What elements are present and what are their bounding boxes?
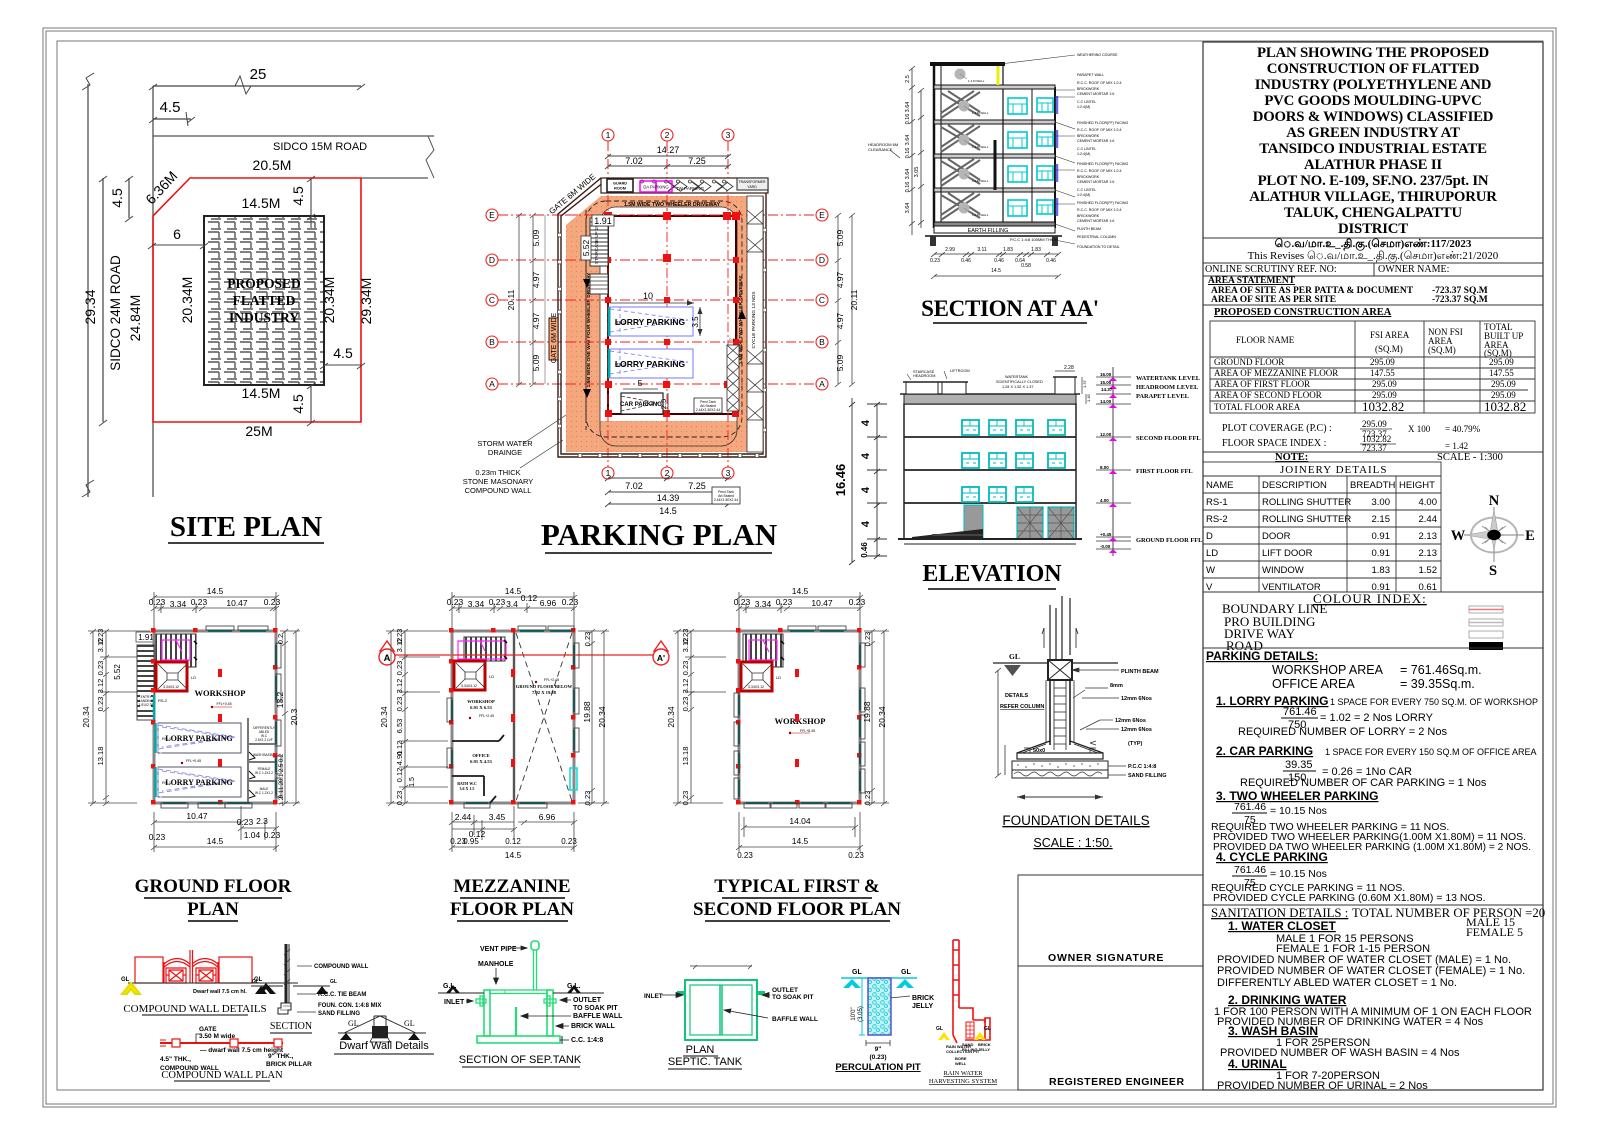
svg-text:0.23: 0.23 bbox=[681, 697, 690, 712]
svg-text:0.23: 0.23 bbox=[583, 632, 592, 647]
svg-text:D: D bbox=[489, 255, 495, 265]
svg-text:0.58: 0.58 bbox=[1021, 263, 1031, 269]
svg-text:5.52: 5.52 bbox=[113, 664, 122, 680]
svg-text:COLOUR INDEX:: COLOUR INDEX: bbox=[1313, 591, 1427, 606]
svg-text:GROUND FLOOR FFL: GROUND FLOOR FFL bbox=[1136, 537, 1202, 544]
svg-text:8mm: 8mm bbox=[1110, 683, 1123, 689]
svg-text:FINISHED FLOOR(FF) FACING: FINISHED FLOOR(FF) FACING bbox=[1077, 162, 1129, 166]
svg-text:TOTAL NUMBER OF PERSON =20: TOTAL NUMBER OF PERSON =20 bbox=[1352, 906, 1545, 920]
svg-text:PARAPET WALL: PARAPET WALL bbox=[1077, 73, 1104, 77]
svg-text:LORRY PARKING: LORRY PARKING bbox=[165, 778, 233, 787]
svg-text:1.91X2.38: 1.91X2.38 bbox=[139, 703, 154, 707]
svg-text:FILLING: FILLING bbox=[962, 1047, 978, 1052]
svg-text:14.5: 14.5 bbox=[207, 586, 224, 596]
svg-text:REGISTERED ENGINEER: REGISTERED ENGINEER bbox=[1049, 1076, 1185, 1088]
svg-text:ROOM: ROOM bbox=[614, 187, 626, 191]
svg-text:GL: GL bbox=[348, 1019, 359, 1028]
svg-text:0.16: 0.16 bbox=[905, 114, 911, 125]
svg-text:B: B bbox=[489, 337, 495, 347]
svg-text:STONE MASONARY: STONE MASONARY bbox=[463, 477, 534, 486]
svg-text:C.C LINTEL: C.C LINTEL bbox=[1077, 147, 1096, 151]
svg-text:PARKING DETAILS:: PARKING DETAILS: bbox=[1206, 649, 1318, 663]
svg-text:2.99: 2.99 bbox=[945, 247, 955, 253]
svg-text:V: V bbox=[1206, 582, 1213, 593]
svg-text:= 761.46Sq.m.: = 761.46Sq.m. bbox=[1400, 663, 1482, 677]
svg-text:YARD: YARD bbox=[747, 185, 757, 189]
svg-text:14.27: 14.27 bbox=[657, 145, 680, 155]
svg-text:WEATHERING COURSE: WEATHERING COURSE bbox=[1077, 53, 1118, 57]
svg-text:PLINTH BEAM: PLINTH BEAM bbox=[1121, 669, 1159, 675]
svg-text:PLOT NO. E-109, SF.NO. 237/5pt: PLOT NO. E-109, SF.NO. 237/5pt. IN bbox=[1258, 173, 1489, 189]
svg-text:9" THK.,: 9" THK., bbox=[268, 1053, 294, 1060]
svg-text:PROVIDED CYCLE PARKING (0.60M: PROVIDED CYCLE PARKING (0.60M X1.80M) = … bbox=[1213, 892, 1486, 904]
svg-text:+0.45: +0.45 bbox=[1100, 532, 1112, 537]
svg-text:1.2: 1.2 bbox=[279, 796, 285, 805]
svg-text:ROLLING SHUTTER: ROLLING SHUTTER bbox=[1262, 497, 1351, 508]
svg-text:0.1: 0.1 bbox=[279, 773, 285, 782]
svg-text:FLOOR SPACE INDEX :: FLOOR SPACE INDEX : bbox=[1222, 438, 1326, 449]
svg-text:0.23m THICK: 0.23m THICK bbox=[475, 468, 520, 477]
svg-text:BRICK WALL: BRICK WALL bbox=[571, 1023, 616, 1030]
svg-text:COMPOUND WALL: COMPOUND WALL bbox=[314, 964, 369, 970]
svg-text:(0.23): (0.23) bbox=[870, 1054, 887, 1061]
svg-text:29.34: 29.34 bbox=[82, 289, 98, 324]
svg-text:= 10.15 Nos: = 10.15 Nos bbox=[1270, 805, 1327, 817]
svg-text:295.09: 295.09 bbox=[1370, 357, 1395, 367]
svg-text:6: 6 bbox=[173, 226, 181, 242]
svg-text:13.18: 13.18 bbox=[681, 747, 690, 766]
svg-text:25: 25 bbox=[250, 66, 267, 83]
svg-text:0.23: 0.23 bbox=[191, 597, 208, 607]
svg-text:VENT PIPE: VENT PIPE bbox=[480, 946, 517, 953]
svg-text:ELEVATION: ELEVATION bbox=[922, 561, 1062, 587]
svg-text:BRICKWORK: BRICKWORK bbox=[1077, 87, 1100, 91]
svg-text:JELLY: JELLY bbox=[912, 1003, 933, 1010]
svg-text:WORKSHOP AREA: WORKSHOP AREA bbox=[1272, 663, 1384, 677]
svg-text:5.09: 5.09 bbox=[835, 229, 845, 246]
svg-text:4.5: 4.5 bbox=[160, 99, 181, 116]
svg-text:CEMENT MORTAR 1:6: CEMENT MORTAR 1:6 bbox=[1077, 219, 1114, 223]
svg-text:BRICKWORK: BRICKWORK bbox=[1077, 175, 1100, 179]
svg-text:SECTION AT AA': SECTION AT AA' bbox=[921, 296, 1099, 321]
svg-text:1.45: 1.45 bbox=[1086, 393, 1091, 402]
svg-text:2: 2 bbox=[665, 130, 670, 140]
svg-text:B: B bbox=[819, 337, 825, 347]
svg-text:PLAN: PLAN bbox=[686, 1044, 715, 1056]
svg-text:3.45: 3.45 bbox=[489, 812, 506, 822]
svg-text:6.91 X 6.53: 6.91 X 6.53 bbox=[470, 705, 492, 710]
svg-text:0.23: 0.23 bbox=[96, 629, 105, 644]
svg-text:1.37: 1.37 bbox=[1082, 379, 1087, 388]
svg-text:X 100: X 100 bbox=[1408, 424, 1431, 434]
svg-text:0.23: 0.23 bbox=[149, 832, 166, 842]
svg-text:0.23: 0.23 bbox=[930, 258, 940, 264]
svg-text:Dwarf Wall Details: Dwarf Wall Details bbox=[339, 1040, 429, 1052]
svg-text:0.12: 0.12 bbox=[521, 593, 538, 603]
svg-text:GROUND FLOOR: GROUND FLOOR bbox=[135, 876, 292, 897]
svg-text:HEADROOM LEVEL: HEADROOM LEVEL bbox=[1136, 384, 1198, 391]
svg-text:14.5M: 14.5M bbox=[242, 195, 281, 211]
svg-text:4: 4 bbox=[860, 520, 872, 527]
svg-text:GATE 6M WIDE: GATE 6M WIDE bbox=[551, 312, 558, 363]
svg-text:4.91: 4.91 bbox=[395, 751, 404, 766]
svg-text:20.34: 20.34 bbox=[379, 706, 389, 728]
svg-text:0.2: 0.2 bbox=[279, 753, 285, 762]
svg-text:DISTRICT: DISTRICT bbox=[1338, 221, 1408, 237]
svg-text:5.09: 5.09 bbox=[531, 229, 541, 246]
svg-text:TRANSFORMER: TRANSFORMER bbox=[738, 180, 766, 184]
svg-text:GL: GL bbox=[852, 969, 862, 976]
svg-text:10.47: 10.47 bbox=[186, 811, 208, 821]
svg-text:= 10.15 Nos: = 10.15 Nos bbox=[1270, 868, 1327, 880]
svg-text:12mm 6Nos: 12mm 6Nos bbox=[1121, 696, 1152, 702]
svg-text:PLAN: PLAN bbox=[187, 899, 239, 920]
svg-text:147.55: 147.55 bbox=[1489, 368, 1514, 378]
svg-text:G.L.: G.L. bbox=[567, 983, 581, 990]
svg-text:DOORS & WINDOWS) CLASSIFIED: DOORS & WINDOWS) CLASSIFIED bbox=[1253, 109, 1494, 125]
svg-text:INDUSTRY (POLYETHYLENE AND: INDUSTRY (POLYETHYLENE AND bbox=[1255, 77, 1492, 93]
svg-text:0.23: 0.23 bbox=[264, 597, 281, 607]
svg-text:PLOT COVERAGE (P.C) :: PLOT COVERAGE (P.C) : bbox=[1222, 423, 1332, 434]
svg-text:GL: GL bbox=[1009, 652, 1020, 661]
svg-text:3.12: 3.12 bbox=[96, 679, 105, 694]
svg-text:DESCRIPTION: DESCRIPTION bbox=[1262, 480, 1327, 491]
svg-text:BAFFLE WALL: BAFFLE WALL bbox=[573, 1013, 623, 1020]
svg-text:20.3: 20.3 bbox=[289, 708, 299, 725]
svg-text:ALATHUR PHASE II: ALATHUR PHASE II bbox=[1304, 157, 1442, 173]
svg-text:CONSTRUCTION OF FLATTED: CONSTRUCTION OF FLATTED bbox=[1267, 61, 1479, 77]
svg-text:1032.82: 1032.82 bbox=[1362, 399, 1404, 414]
svg-text:CEMENT MORTAR 1:6: CEMENT MORTAR 1:6 bbox=[1077, 92, 1114, 96]
svg-text:19.88: 19.88 bbox=[862, 701, 872, 723]
svg-text:0.46: 0.46 bbox=[994, 258, 1004, 264]
svg-text:BAFFLE WALL: BAFFLE WALL bbox=[772, 1016, 818, 1023]
svg-text:DOOR: DOOR bbox=[1262, 531, 1291, 542]
svg-text:CYCLE PARKING 13 NOS: CYCLE PARKING 13 NOS bbox=[751, 292, 757, 349]
svg-text:4.5: 4.5 bbox=[109, 188, 125, 208]
svg-text:5.09: 5.09 bbox=[835, 354, 845, 371]
svg-text:PROPOSED CONSTRUCTION AREA: PROPOSED CONSTRUCTION AREA bbox=[1214, 307, 1392, 318]
svg-text:25M: 25M bbox=[245, 423, 272, 439]
svg-text:0.23: 0.23 bbox=[737, 851, 753, 860]
svg-text:0.95: 0.95 bbox=[463, 837, 479, 846]
svg-text:FFL+2.45: FFL+2.45 bbox=[479, 714, 494, 718]
svg-text:14.5: 14.5 bbox=[792, 586, 809, 596]
svg-text:COMPOUND WALL PLAN: COMPOUND WALL PLAN bbox=[161, 1070, 283, 1081]
svg-text:1.4 M WALL: 1.4 M WALL bbox=[972, 111, 989, 115]
svg-text:DRAINGE: DRAINGE bbox=[488, 448, 522, 457]
svg-text:6.91 X 4.53: 6.91 X 4.53 bbox=[470, 759, 492, 764]
svg-text:PEDESTRIAL COLUMN: PEDESTRIAL COLUMN bbox=[1077, 235, 1116, 239]
svg-text:PARKING PLAN: PARKING PLAN bbox=[541, 517, 777, 552]
svg-text:FOUNDATION DETAILS: FOUNDATION DETAILS bbox=[1002, 813, 1149, 828]
svg-text:3.64: 3.64 bbox=[905, 135, 911, 146]
svg-text:3.34: 3.34 bbox=[468, 599, 485, 609]
svg-text:0.23: 0.23 bbox=[681, 791, 690, 806]
svg-text:19.88: 19.88 bbox=[582, 701, 592, 723]
svg-text:STORM WATER: STORM WATER bbox=[477, 439, 533, 448]
svg-text:LORRY PARKING: LORRY PARKING bbox=[165, 734, 233, 743]
svg-text:CAR PARKING: CAR PARKING bbox=[620, 402, 662, 408]
svg-text:6.96: 6.96 bbox=[539, 812, 556, 822]
svg-text:ALATHUR VILLAGE, THIRUPORUR: ALATHUR VILLAGE, THIRUPORUR bbox=[1249, 189, 1497, 205]
svg-text:LD: LD bbox=[191, 675, 196, 680]
svg-text:3.34X3.12: 3.34X3.12 bbox=[748, 685, 764, 689]
svg-text:14.00: 14.00 bbox=[1100, 399, 1112, 404]
svg-text:7.02 X 19.88: 7.02 X 19.88 bbox=[532, 690, 557, 695]
svg-text:(3.05): (3.05) bbox=[858, 1006, 864, 1022]
svg-text:-723.37 SQ.M: -723.37 SQ.M bbox=[1432, 295, 1488, 305]
svg-text:3.34: 3.34 bbox=[755, 599, 772, 609]
svg-text:A': A' bbox=[657, 653, 665, 663]
svg-text:GL: GL bbox=[901, 969, 911, 976]
svg-text:10.47: 10.47 bbox=[811, 598, 833, 608]
svg-text:BRICKWORK: BRICKWORK bbox=[1077, 134, 1100, 138]
svg-text:1.4 M WALL: 1.4 M WALL bbox=[968, 79, 985, 83]
svg-text:R.C.C. TIE BEAM: R.C.C. TIE BEAM bbox=[318, 992, 366, 998]
svg-text:DA PARKING: DA PARKING bbox=[643, 185, 668, 190]
svg-text:0.23: 0.23 bbox=[489, 597, 506, 607]
svg-text:0.23: 0.23 bbox=[395, 791, 404, 806]
svg-text:14.39: 14.39 bbox=[657, 493, 680, 503]
svg-text:HEADROOM: HEADROOM bbox=[913, 374, 935, 378]
svg-text:SEPTIC. TANK: SEPTIC. TANK bbox=[668, 1056, 743, 1068]
svg-text:20.34: 20.34 bbox=[666, 706, 676, 728]
svg-text:RS-2: RS-2 bbox=[158, 698, 168, 703]
svg-text:STAIRCASE UP 19R: STAIRCASE UP 19R bbox=[594, 221, 599, 264]
svg-text:PLAN SHOWING THE PROPOSED: PLAN SHOWING THE PROPOSED bbox=[1257, 45, 1489, 61]
svg-text:2.44X1.50X2.44: 2.44X1.50X2.44 bbox=[714, 498, 738, 502]
svg-text:20.34M: 20.34M bbox=[179, 277, 195, 324]
svg-text:A: A bbox=[489, 379, 495, 389]
svg-text:295.09: 295.09 bbox=[1489, 357, 1514, 367]
svg-text:GROUND FLOOR BELOW: GROUND FLOOR BELOW bbox=[516, 684, 573, 689]
svg-text:6.96: 6.96 bbox=[540, 598, 557, 608]
svg-text:1 SPACE FOR EVERY 150 SQ.M OF: 1 SPACE FOR EVERY 150 SQ.M OF OFFICE ARE… bbox=[1325, 747, 1537, 757]
svg-text:CLEARANCE: CLEARANCE bbox=[868, 147, 893, 152]
svg-text:2.13: 2.13 bbox=[1419, 548, 1438, 559]
svg-text:1.04: 1.04 bbox=[244, 830, 261, 840]
svg-text:4.5: 4.5 bbox=[290, 394, 306, 414]
svg-text:BRICKWORK: BRICKWORK bbox=[1077, 214, 1100, 218]
svg-text:295.09: 295.09 bbox=[1372, 379, 1397, 389]
svg-text:4: 4 bbox=[860, 419, 872, 426]
svg-text:PERCULATION PIT: PERCULATION PIT bbox=[835, 1062, 921, 1073]
svg-text:CEMENT MORTAR 1:6: CEMENT MORTAR 1:6 bbox=[1077, 180, 1114, 184]
svg-text:3.12: 3.12 bbox=[395, 679, 404, 694]
svg-text:14.5: 14.5 bbox=[505, 850, 522, 860]
svg-text:0.23: 0.23 bbox=[264, 830, 281, 840]
svg-text:3.11: 3.11 bbox=[977, 247, 987, 253]
svg-text:4.97: 4.97 bbox=[835, 271, 845, 288]
svg-text:12.00: 12.00 bbox=[1100, 432, 1112, 437]
svg-text:AREA OF FIRST FLOOR: AREA OF FIRST FLOOR bbox=[1214, 379, 1310, 389]
svg-text:AREA OF SITE AS PER SITE: AREA OF SITE AS PER SITE bbox=[1211, 295, 1336, 305]
svg-text:0.23: 0.23 bbox=[681, 661, 690, 676]
svg-text:INDUSTRY: INDUSTRY bbox=[229, 310, 299, 325]
svg-text:Dwarf wall 7.5 cm hl.: Dwarf wall 7.5 cm hl. bbox=[193, 989, 247, 995]
svg-text:GL: GL bbox=[252, 979, 259, 985]
svg-text:SAND FILLING: SAND FILLING bbox=[318, 1011, 360, 1017]
svg-text:TW PARKING: TW PARKING bbox=[676, 186, 705, 191]
svg-text:15.00: 15.00 bbox=[1100, 380, 1112, 385]
svg-text:FFL+2.45: FFL+2.45 bbox=[544, 678, 559, 682]
svg-text:GL: GL bbox=[121, 977, 130, 983]
svg-text:0.23: 0.23 bbox=[562, 597, 579, 607]
svg-text:0.1: 0.1 bbox=[279, 789, 285, 798]
svg-text:1.5M WIDE TWO WHEELER DRIVEWA: 1.5M WIDE TWO WHEELER DRIVEWAY bbox=[624, 202, 721, 208]
svg-text:0.16: 0.16 bbox=[905, 148, 911, 159]
svg-text:0.12: 0.12 bbox=[395, 768, 404, 783]
svg-text:GL: GL bbox=[330, 979, 337, 985]
svg-text:BRICK: BRICK bbox=[912, 995, 934, 1002]
svg-text:CEMENT MORTAR 1:6: CEMENT MORTAR 1:6 bbox=[1077, 139, 1114, 143]
svg-text:20.34: 20.34 bbox=[877, 706, 887, 728]
svg-text:FSI AREA: FSI AREA bbox=[1370, 330, 1410, 340]
svg-text:4.00: 4.00 bbox=[1100, 498, 1109, 503]
svg-text:WINDOW: WINDOW bbox=[1262, 565, 1304, 576]
svg-text:N: N bbox=[1489, 493, 1500, 509]
svg-text:OFFICE: OFFICE bbox=[472, 753, 489, 758]
svg-text:ONLINE SCRUTINY REF. NO:: ONLINE SCRUTINY REF. NO: bbox=[1205, 264, 1337, 275]
svg-text:WELL: WELL bbox=[955, 1061, 967, 1066]
svg-text:NOTE:: NOTE: bbox=[1275, 452, 1308, 463]
svg-text:20.34: 20.34 bbox=[81, 706, 91, 728]
svg-text:PARAPET LEVEL: PARAPET LEVEL bbox=[1136, 393, 1189, 400]
svg-text:S: S bbox=[1489, 563, 1497, 579]
svg-text:4.5" THK.,: 4.5" THK., bbox=[160, 1056, 191, 1063]
svg-text:1.91: 1.91 bbox=[138, 633, 154, 642]
svg-text:FINISHED FLOOR(FF) FACING: FINISHED FLOOR(FF) FACING bbox=[1077, 121, 1129, 125]
svg-text:2.5X1.2 LVF: 2.5X1.2 LVF bbox=[255, 738, 273, 742]
svg-text:GATE: GATE bbox=[199, 1026, 217, 1033]
svg-text:DIFFERENTLY ABLED WATER CLOSET: DIFFERENTLY ABLED WATER CLOSET = 1 No. bbox=[1217, 977, 1457, 989]
svg-text:SECOND FLOOR FFL: SECOND FLOOR FFL bbox=[1136, 435, 1201, 442]
svg-text:P.C.C 1:4:8: P.C.C 1:4:8 bbox=[1128, 764, 1156, 770]
svg-text:4. CYCLE PARKING: 4. CYCLE PARKING bbox=[1216, 850, 1328, 864]
svg-text:OUTLET: OUTLET bbox=[573, 997, 602, 1004]
svg-text:12mm 6Nos: 12mm 6Nos bbox=[1121, 727, 1152, 733]
svg-text:SECOND FLOOR PLAN: SECOND FLOOR PLAN bbox=[693, 899, 901, 920]
svg-text:7.25: 7.25 bbox=[688, 156, 706, 166]
svg-text:14.5: 14.5 bbox=[792, 836, 809, 846]
svg-text:3.6 X 1.5: 3.6 X 1.5 bbox=[460, 786, 475, 791]
svg-text:2.5: 2.5 bbox=[279, 763, 285, 772]
svg-text:TYPICAL FIRST &: TYPICAL FIRST & bbox=[714, 876, 879, 897]
svg-text:761.46: 761.46 bbox=[1234, 864, 1266, 876]
svg-text:A: A bbox=[819, 379, 825, 389]
svg-text:3.64: 3.64 bbox=[905, 169, 911, 180]
svg-text:0.91: 0.91 bbox=[1372, 548, 1391, 559]
svg-text:1.52: 1.52 bbox=[1419, 565, 1438, 576]
svg-text:SIDCO 15M ROAD: SIDCO 15M ROAD bbox=[273, 141, 367, 153]
svg-text:AREA OF MEZZANINE FLOOR: AREA OF MEZZANINE FLOOR bbox=[1214, 368, 1338, 378]
svg-text:2.44: 2.44 bbox=[1419, 514, 1438, 525]
svg-text:SECTION OF SEP.TANK: SECTION OF SEP.TANK bbox=[459, 1054, 582, 1066]
svg-text:TO SOAK PIT: TO SOAK PIT bbox=[573, 1005, 618, 1012]
svg-text:SANITATION DETAILS :: SANITATION DETAILS : bbox=[1211, 906, 1348, 920]
svg-text:C.C. 1:4:8: C.C. 1:4:8 bbox=[571, 1037, 603, 1044]
svg-text:3.00: 3.00 bbox=[1372, 497, 1391, 508]
svg-text:LD: LD bbox=[776, 675, 781, 680]
svg-text:3: 3 bbox=[726, 130, 731, 140]
svg-text:OWNER NAME:: OWNER NAME: bbox=[1378, 264, 1449, 275]
svg-text:TO SOAK PIT: TO SOAK PIT bbox=[772, 994, 813, 1001]
svg-text:MANHOLE: MANHOLE bbox=[478, 961, 514, 968]
svg-text:0.2: 0.2 bbox=[276, 634, 285, 644]
svg-text:WORKSHOP: WORKSHOP bbox=[194, 688, 245, 698]
svg-text:2.13: 2.13 bbox=[1419, 531, 1438, 542]
svg-text:0.46: 0.46 bbox=[1046, 258, 1056, 264]
svg-text:4.97: 4.97 bbox=[531, 312, 541, 329]
svg-text:E: E bbox=[489, 210, 495, 220]
svg-text:SIDCO 24M ROAD: SIDCO 24M ROAD bbox=[108, 255, 123, 371]
svg-text:GUARD: GUARD bbox=[613, 182, 627, 186]
svg-text:0.6: 0.6 bbox=[729, 337, 735, 342]
svg-text:1.83: 1.83 bbox=[1372, 565, 1391, 576]
svg-text:39.35: 39.35 bbox=[1285, 759, 1313, 771]
svg-text:4: 4 bbox=[860, 452, 872, 459]
svg-text:RS-2: RS-2 bbox=[1206, 514, 1228, 525]
svg-text:D: D bbox=[1206, 531, 1213, 542]
svg-text:3.4: 3.4 bbox=[506, 599, 518, 609]
svg-text:R.C.C. ROOF OF MIX 1:2:4: R.C.C. ROOF OF MIX 1:2:4 bbox=[1077, 208, 1122, 212]
svg-text:This Revises ெ.வ/மா.உ_.தி.கு.(: This Revises ெ.வ/மா.உ_.தி.கு.(செமா)எண்:2… bbox=[1248, 250, 1499, 264]
svg-text:3.34X3.12: 3.34X3.12 bbox=[163, 685, 179, 689]
svg-text:2.5: 2.5 bbox=[905, 75, 911, 83]
svg-text:0.23: 0.23 bbox=[863, 791, 872, 806]
svg-text:1.83: 1.83 bbox=[1031, 247, 1041, 253]
svg-text:0.23: 0.23 bbox=[849, 597, 866, 607]
svg-text:GROUND FLOOR: GROUND FLOOR bbox=[1214, 357, 1284, 367]
svg-text:3.34: 3.34 bbox=[170, 599, 187, 609]
svg-text:TALUK, CHENGALPATTU: TALUK, CHENGALPATTU bbox=[1284, 205, 1462, 221]
svg-text:PROVIDED NUMBER OF URINAL = 2: PROVIDED NUMBER OF URINAL = 2 Nos bbox=[1217, 1080, 1428, 1092]
svg-text:NAME: NAME bbox=[1206, 480, 1233, 491]
svg-text:REQUIRED NUMBER OF CAR PARKING: REQUIRED NUMBER OF CAR PARKING = 1 Nos bbox=[1240, 777, 1487, 789]
svg-text:OUTLET: OUTLET bbox=[772, 987, 798, 994]
svg-text:1: 1 bbox=[606, 130, 611, 140]
svg-text:TANSIDCO INDUSTRIAL ESTATE: TANSIDCO INDUSTRIAL ESTATE bbox=[1259, 141, 1487, 157]
svg-text:INLET: INLET bbox=[444, 999, 465, 1006]
svg-text:FOUN. CON. 1:4:8 MIX: FOUN. CON. 1:4:8 MIX bbox=[318, 1003, 381, 1009]
svg-text:4.97: 4.97 bbox=[835, 312, 845, 329]
svg-text:BREADTH: BREADTH bbox=[1350, 480, 1396, 491]
svg-text:13.2: 13.2 bbox=[275, 691, 285, 708]
svg-text:3.34X3.12: 3.34X3.12 bbox=[461, 684, 477, 688]
svg-text:7.25: 7.25 bbox=[688, 481, 706, 491]
svg-text:0.23: 0.23 bbox=[237, 817, 254, 827]
svg-text:HEIGHT: HEIGHT bbox=[1399, 480, 1435, 491]
svg-text:2.28: 2.28 bbox=[1064, 365, 1074, 371]
svg-text:W.C 1.2X1.2: W.C 1.2X1.2 bbox=[255, 791, 273, 795]
svg-text:(TYP): (TYP) bbox=[1128, 741, 1143, 747]
svg-text:OFFICE AREA: OFFICE AREA bbox=[1272, 677, 1355, 691]
svg-text:SCALE : 1:50.: SCALE : 1:50. bbox=[1033, 836, 1112, 850]
svg-text:3.64: 3.64 bbox=[905, 102, 911, 113]
svg-text:0.23: 0.23 bbox=[395, 661, 404, 676]
svg-text:DETAILS: DETAILS bbox=[1005, 693, 1028, 699]
svg-text:FINISHED FLOOR(FF) FACING: FINISHED FLOOR(FF) FACING bbox=[1077, 201, 1129, 205]
svg-text:4.97: 4.97 bbox=[531, 271, 541, 288]
svg-text:FLOOR NAME: FLOOR NAME bbox=[1236, 335, 1295, 345]
svg-text:SITE PLAN: SITE PLAN bbox=[170, 511, 322, 543]
svg-text:LD: LD bbox=[489, 674, 494, 679]
svg-text:E: E bbox=[819, 210, 825, 220]
svg-text:8.00: 8.00 bbox=[1100, 465, 1109, 470]
svg-text:761.46: 761.46 bbox=[1234, 801, 1266, 813]
svg-text:TOTAL FLOOR AREA: TOTAL FLOOR AREA bbox=[1214, 402, 1301, 412]
